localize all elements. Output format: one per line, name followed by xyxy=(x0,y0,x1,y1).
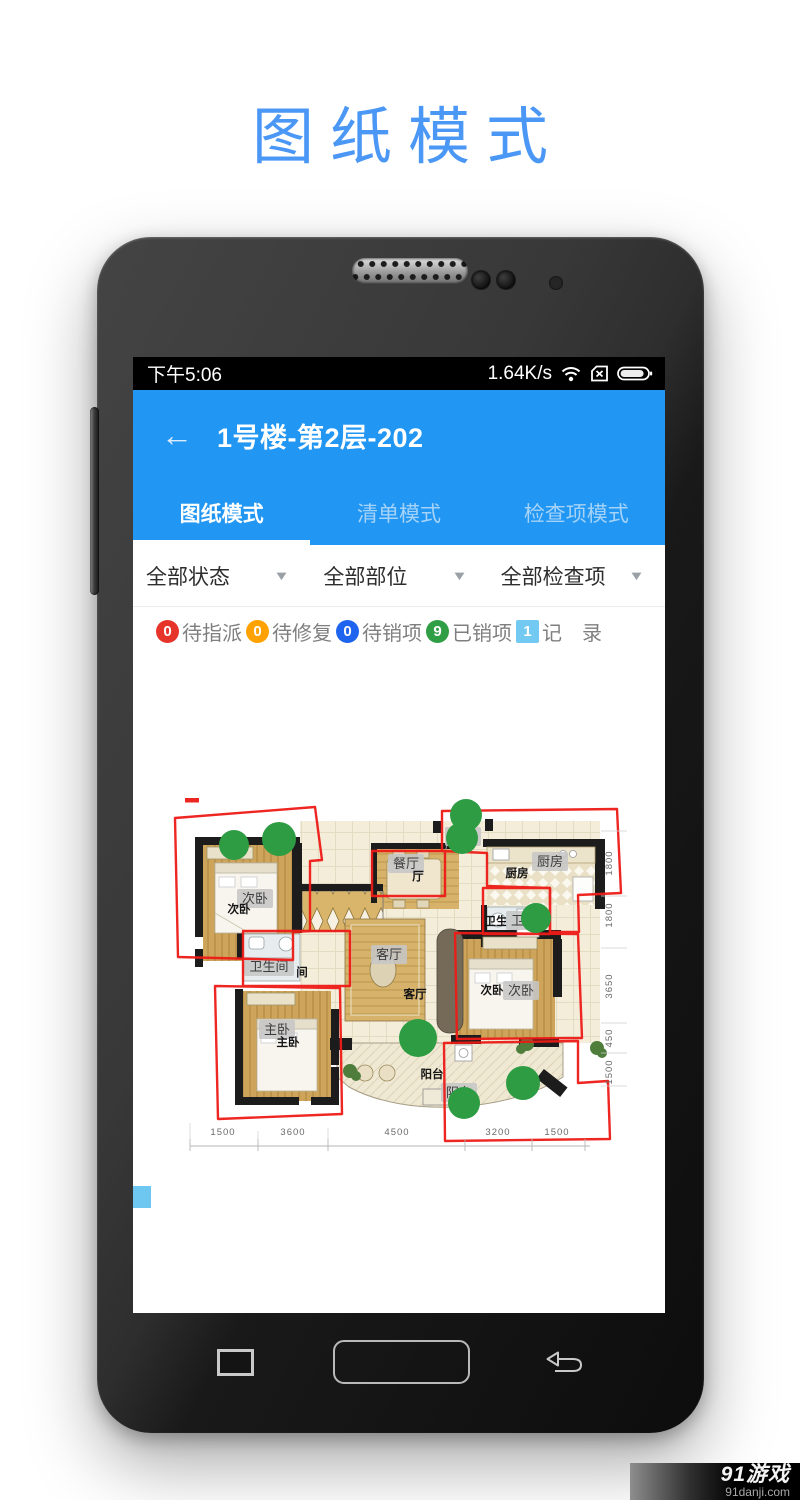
svg-text:4500: 4500 xyxy=(384,1127,409,1138)
speaker-grille xyxy=(352,258,468,284)
svg-text:卫生间: 卫生间 xyxy=(249,959,288,974)
filter-all-parts[interactable]: 全部部位 ▼ xyxy=(310,545,487,606)
svg-text:厨房: 厨房 xyxy=(537,854,563,869)
svg-text:客厅: 客厅 xyxy=(403,987,427,1001)
volume-button xyxy=(90,407,99,595)
phone-screen: 下午5:06 1.64K/s xyxy=(133,357,665,1313)
svg-text:1800: 1800 xyxy=(604,902,615,927)
filter-bar: 全部状态 ▼ 全部部位 ▼ 全部检查项 ▼ xyxy=(133,545,665,607)
count-badge: 0 xyxy=(336,620,359,643)
unit-title: 1号楼-第2层-202 xyxy=(217,416,424,455)
filter-all-status[interactable]: 全部状态 ▼ xyxy=(133,545,310,606)
page: 图纸模式 下午5:06 1.64K/s xyxy=(0,0,800,1500)
chevron-down-icon: ▼ xyxy=(451,568,468,583)
svg-text:阳台: 阳台 xyxy=(421,1067,444,1081)
svg-text:1500: 1500 xyxy=(604,1059,615,1084)
svg-text:客厅: 客厅 xyxy=(376,947,402,962)
tab-checkitem-mode[interactable]: 检查项模式 xyxy=(488,480,665,545)
back-icon[interactable] xyxy=(546,1351,584,1373)
count-badge: 9 xyxy=(426,620,449,643)
tab-drawing-mode[interactable]: 图纸模式 xyxy=(133,480,310,545)
battery-icon xyxy=(617,365,653,382)
status-time: 下午5:06 xyxy=(147,360,222,387)
drawing-canvas[interactable]: 次卧 次卧 卫生间 间 主卧 主卧 餐厅 厅 入门 厨 xyxy=(133,656,665,1313)
net-speed: 1.64K/s xyxy=(488,363,552,385)
tab-bar: 图纸模式 清单模式 检查项模式 xyxy=(133,480,665,545)
chevron-down-icon: ▼ xyxy=(274,568,291,583)
legend-pending-assign[interactable]: 0 待指派 xyxy=(156,617,242,646)
phone-nav-bar xyxy=(97,1335,704,1405)
floorplan-image[interactable]: 次卧 次卧 卫生间 间 主卧 主卧 餐厅 厅 入门 厨 xyxy=(165,781,645,1151)
svg-text:主卧: 主卧 xyxy=(264,1022,290,1037)
legend-pending-fix[interactable]: 0 待修复 xyxy=(246,617,332,646)
home-icon[interactable] xyxy=(333,1340,470,1384)
chevron-down-icon: ▼ xyxy=(628,568,645,583)
count-badge: 1 xyxy=(516,620,539,643)
record-marker[interactable] xyxy=(133,1186,151,1208)
legend-closed[interactable]: 9 已销项 xyxy=(426,617,512,646)
legend-pending-close[interactable]: 0 待销项 xyxy=(336,617,422,646)
proximity-sensor-icon xyxy=(497,271,515,289)
svg-text:1800: 1800 xyxy=(604,850,615,875)
svg-text:3650: 3650 xyxy=(604,973,615,998)
app-header: ← 1号楼-第2层-202 xyxy=(133,390,665,480)
count-badge: 0 xyxy=(246,620,269,643)
no-sim-icon xyxy=(590,365,609,382)
legend-bar: 0 待指派 0 待修复 0 待销项 9 已销项 1 记 录 xyxy=(133,607,665,656)
front-camera-icon xyxy=(472,271,490,289)
svg-text:1500: 1500 xyxy=(544,1127,569,1138)
watermark: 91游戏 91danji.com xyxy=(630,1463,800,1500)
light-sensor-icon xyxy=(549,276,563,290)
tab-list-mode[interactable]: 清单模式 xyxy=(310,480,487,545)
page-title: 图纸模式 xyxy=(0,86,800,176)
filter-all-checkitems[interactable]: 全部检查项 ▼ xyxy=(488,545,665,606)
svg-text:450: 450 xyxy=(604,1029,615,1048)
svg-text:卫生: 卫生 xyxy=(485,914,508,928)
svg-text:餐厅: 餐厅 xyxy=(393,856,419,871)
watermark-site: 91danji.com xyxy=(630,1486,790,1498)
status-bar: 下午5:06 1.64K/s xyxy=(133,357,665,390)
phone-frame: 下午5:06 1.64K/s xyxy=(97,237,704,1433)
svg-text:1500: 1500 xyxy=(210,1127,235,1138)
svg-text:3600: 3600 xyxy=(280,1127,305,1138)
svg-text:厅: 厅 xyxy=(412,870,424,883)
legend-record[interactable]: 1 记 录 xyxy=(516,617,602,646)
wifi-icon xyxy=(560,365,582,382)
svg-text:次卧: 次卧 xyxy=(481,983,504,997)
svg-text:次卧: 次卧 xyxy=(228,902,251,916)
back-arrow-icon[interactable]: ← xyxy=(161,419,193,451)
svg-text:3200: 3200 xyxy=(485,1127,510,1138)
svg-text:次卧: 次卧 xyxy=(508,983,534,998)
recents-icon[interactable] xyxy=(217,1349,254,1376)
svg-text:间: 间 xyxy=(296,965,308,979)
watermark-brand: 91游戏 xyxy=(630,1464,790,1485)
count-badge: 0 xyxy=(156,620,179,643)
svg-text:主卧: 主卧 xyxy=(277,1035,300,1049)
svg-text:厨房: 厨房 xyxy=(506,866,529,880)
